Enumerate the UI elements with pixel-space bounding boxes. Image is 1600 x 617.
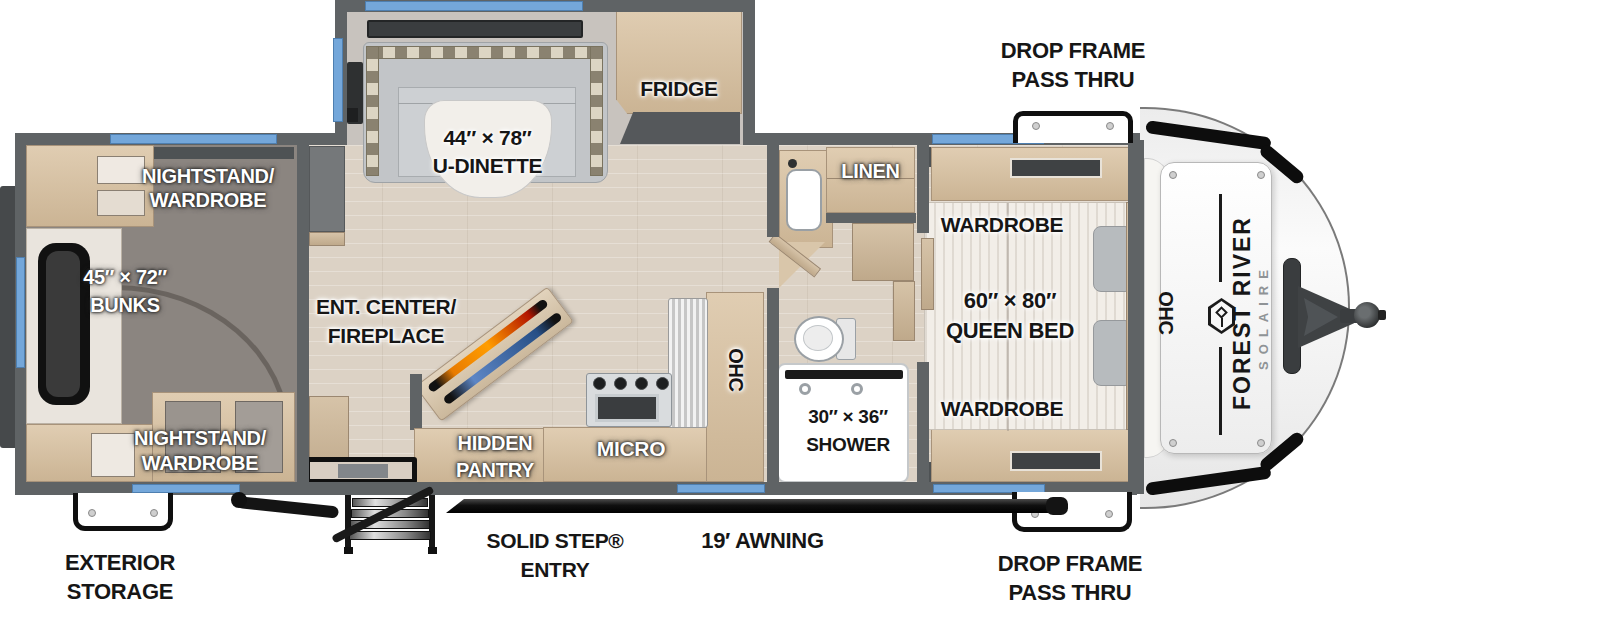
awning-end-cap — [1046, 497, 1068, 515]
label-u-dinette: 44″ × 78″ U-DINETTE — [400, 124, 575, 181]
window-bunk-top — [110, 134, 277, 144]
label-awning: 19′ AWNING — [680, 527, 845, 555]
label-bedroom-ohc: OHC — [1156, 278, 1178, 348]
label-wardrobe-top: WARDROBE — [922, 212, 1082, 238]
label-wardrobe-bottom: WARDROBE — [922, 396, 1082, 422]
bedroom-wardrobe-bottom — [931, 428, 1132, 482]
label-exterior-storage: EXTERIOR STORAGE — [30, 548, 210, 607]
label-ent-center: ENT. CENTER/ FIREPLACE — [295, 292, 477, 351]
bedroom-wardrobe-top — [931, 147, 1132, 201]
label-nightstand-bottom: NIGHTSTAND/ WARDROBE — [100, 426, 300, 476]
label-hidden-pantry: HIDDEN PANTRY — [425, 430, 565, 484]
label-fridge: FRIDGE — [618, 76, 740, 102]
label-drop-frame-bottom: DROP FRAME PASS THRU — [985, 549, 1155, 608]
hitch-jack-knob — [1354, 302, 1380, 328]
brand-name: FOREST RIVER — [1228, 201, 1254, 425]
hitch — [1280, 250, 1400, 390]
wall-bath-left-lower — [767, 288, 779, 482]
label-queen-bed: 60″ × 80″ QUEEN BED — [920, 286, 1100, 345]
awning-arm-cap — [231, 492, 247, 508]
logo-rule-top — [1219, 194, 1222, 282]
wall-slideout-right — [743, 0, 755, 145]
label-bunks: 45″ × 72″ BUNKS — [50, 263, 200, 319]
window-slideout-left — [333, 38, 343, 122]
label-shower: 30″ × 36″ SHOWER — [783, 403, 913, 458]
awning-bar — [446, 499, 1058, 513]
entry-steps — [340, 490, 450, 560]
label-micro: MICRO — [575, 436, 687, 462]
window-kitchen-bottom — [677, 484, 765, 493]
window-bunk-bottom — [132, 484, 240, 493]
logo-rule-bottom — [1219, 347, 1222, 435]
wall-bath-left-upper — [767, 145, 779, 237]
label-solid-step-entry: SOLID STEP® ENTRY — [455, 527, 655, 585]
label-drop-frame-top: DROP FRAME PASS THRU — [988, 36, 1158, 95]
brand-series: SOLAIRE — [1256, 252, 1271, 382]
window-slideout-top — [365, 1, 583, 11]
label-kitchen-ohc: OHC — [726, 335, 748, 405]
floorplan-canvas: FOREST RIVER SOLAIRE NIGHTSTAND/ WARDR — [0, 0, 1600, 617]
pass-thru-door-top — [1013, 111, 1133, 143]
label-linen: LINEN — [818, 159, 923, 184]
window-bunk-left — [16, 257, 25, 368]
hitch-coupler-tip — [1378, 310, 1386, 320]
wall-front — [1128, 140, 1144, 494]
exterior-storage-door — [73, 493, 173, 531]
label-nightstand-top: NIGHTSTAND/ WARDROBE — [108, 164, 308, 212]
